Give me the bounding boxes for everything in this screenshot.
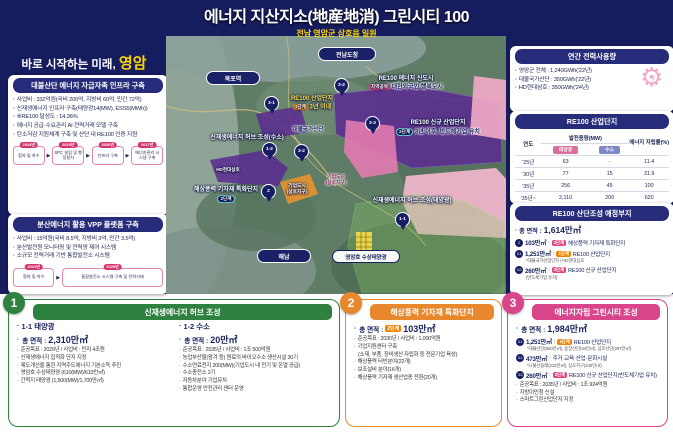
- stage-chip-2-wind: 2단계: [217, 195, 234, 203]
- map-label-lake-floating-solar: 영암호 수상태양광: [332, 250, 400, 263]
- wind-cluster-title: 해상풍력 기자재 특화단지: [370, 304, 494, 320]
- map-label-bizcity-small: 기업도시 (삼호지구): [278, 184, 316, 196]
- green-city-title: 에너지자립 그린시티 조성: [532, 304, 660, 320]
- timeline: 2024년 협약 및 착수 ▶ 2025년 통합발전소 시스템 구축 및 전력거…: [13, 268, 163, 287]
- left-panel-infra: 대불산단 에너지 자급자족 인프라 구축 사업비 : 332억원(국비 200억…: [8, 75, 168, 215]
- right-panel-re100-table: RE100 산업단지 연도 발전용량(MW) 에너지 자립률(%) 태양광 수소…: [510, 111, 673, 204]
- slogan-highlight: 영암: [119, 55, 147, 72]
- slogan: 바로 시작하는 미래, 영암: [4, 52, 164, 73]
- panel-number-badge: 2: [340, 292, 362, 314]
- site-item-note: (반도체기업 유치): [526, 275, 669, 281]
- slogan-prefix: 바로 시작하는 미래,: [21, 59, 118, 71]
- col-solar: 태양광: [553, 146, 578, 154]
- map-label-re100-industrial-line2: 1단계 3년 이내: [274, 104, 350, 112]
- map-pin-3-1: 3-1: [264, 96, 279, 111]
- map-pin-1-1: 1-1: [395, 212, 410, 227]
- timeline-step: 2025년 SPC 설립 및 행정절차: [52, 146, 84, 165]
- table-row: '30년771531.9: [515, 168, 669, 180]
- timeline-step: 2025년 통합발전소 시스템 구축 및 전력거래: [62, 268, 163, 287]
- bullet: 탄소저감 지원체계 구축 및 산단 내 RE100 인증 지원: [13, 131, 163, 140]
- map-label-hub-solar: 신재생에너지 허브 조성(태양광): [354, 198, 470, 206]
- map-place-mokpo-station: 목포역: [206, 71, 260, 85]
- arrow-icon: ▶: [56, 275, 60, 281]
- right-panel-planned-sites: RE100 산단조성 예정부지 · 총 면적 : 1,614만㎡ 2 103만㎡…: [510, 203, 673, 295]
- arrow-icon: ▶: [126, 153, 130, 159]
- stage-chip-2: 2단계: [396, 128, 413, 136]
- site-item-note: *대불국가산업단지 / HD현대삼호: [526, 258, 669, 264]
- bottom-panel-green-city: 3 에너지자립 그린시티 조성 총 면적 : 1,984만㎡ 3-1 1,251…: [507, 299, 668, 427]
- bullet: 대불국가산단 : 350GWh('22년): [515, 76, 639, 85]
- map-label-new-industrial-line2: 2단계 3년 이후, 반도체기업 유치: [380, 128, 496, 137]
- map-label-energy-newtown: RE100 에너지 신도시 지역공약 대한외국인 행복도시: [354, 76, 458, 92]
- map-label-energy-newtown-line2: 지역공약 대한외국인 행복도시: [354, 84, 458, 92]
- map-place-jeonnam-office: 전남도청: [318, 47, 376, 61]
- col-h2: 수소: [599, 146, 620, 154]
- arrow-icon: ▶: [47, 153, 51, 159]
- site-item: 2 103만㎡: 2단계 해상풍력 기자재 특화단지: [515, 238, 669, 247]
- re100-capacity-table: 연도 발전용량(MW) 에너지 자립률(%) 태양광 수소 '25년63-11.…: [515, 132, 669, 204]
- left-panel-vpp-title: 분산에너지 활용 VPP 플랫폼 구축: [13, 217, 163, 232]
- col-year: 연도: [515, 132, 541, 156]
- area-line: 총 면적 : 20만㎡: [179, 333, 333, 346]
- bullet: 분산발전원 모니터링 및 전력망 제어 시스템: [13, 244, 163, 253]
- site-item: 3-1 1,251만㎡: 1단계 RE100 산업단지: [515, 249, 669, 258]
- area-line: 총 면적 : 1,984만㎡: [516, 322, 661, 335]
- solar-column: 1-1 태양광 총 면적 : 2,310만㎡ 준공목표 : 2029년 / 사업…: [17, 321, 171, 423]
- right-panel-power-usage: 연간 전력사용량 영암군 전체 : 1,240GWh('22년) 대불국가산단 …: [510, 46, 673, 112]
- planned-sites-title: RE100 산단조성 예정부지: [515, 206, 669, 221]
- total-area: · 총 면적 : 1,614만㎡: [515, 224, 669, 236]
- area-line: 총 면적 : 2,310만㎡: [17, 333, 171, 346]
- map-label-bizcity: 기업도시 (삼호지구): [314, 175, 358, 187]
- panel-number-badge: 1: [3, 292, 25, 314]
- renewable-hub-title: 신재생에너지 허브 조성: [33, 304, 332, 320]
- bullet: ※RE100 달성도 : 14.36%: [13, 113, 163, 122]
- page-title: 에너지 지산지소(地産地消) 그린시티 100: [0, 3, 673, 27]
- arrow-icon: ▶: [86, 153, 90, 159]
- city-item-note: *대불산단(820만㎡), 용장산단(34만㎡), 삼호산단(297만㎡): [527, 346, 661, 352]
- satellite-map: 목포역 전남도청 해남 영암호 수상태양광 3-1 3-2 1-2 3-2 2 …: [166, 36, 506, 294]
- city-item: 3-2 473만㎡: 주거·교육·산업·문화시설: [516, 354, 661, 363]
- panel-number-badge: 3: [502, 292, 524, 314]
- bullet: 소규모 전력거래 기반 통합발전소 시스템: [13, 252, 163, 261]
- header: 에너지 지산지소(地産地消) 그린시티 100 전남 영암군 삼호읍 일원: [0, 3, 673, 39]
- re100-table-title: RE100 산업단지: [515, 114, 669, 129]
- table-row: '25년63-11.4: [515, 156, 669, 168]
- bullet: 에너지 공급·수요관리 AI 전력거래 모델 구축: [13, 122, 163, 131]
- col-capacity: 발전용량(MW): [541, 132, 629, 144]
- city-item: 3-3 260만㎡: 2단계 RE100 신규 산업단지(반도체기업 유치): [516, 371, 661, 380]
- bottom-panel-renewable-hub: 1 신재생에너지 허브 조성 1-1 태양광 총 면적 : 2,310만㎡ 준공…: [8, 299, 340, 427]
- timeline-step: 2024년 협약 및 착수: [13, 146, 45, 165]
- bullet: 신재생에너지 인프라 구축(태양광14(MW), ESS5(MWh)): [13, 105, 163, 114]
- table-row: '35년~2,110200620: [515, 192, 669, 204]
- timeline-step: 2027년 에너지관리 시스템 구축: [131, 146, 163, 165]
- map-label-hub-hydrogen: 신재생에너지 허브 조성(수소): [192, 135, 302, 143]
- col-rate: 에너지 자립률(%): [629, 132, 669, 156]
- map-pin-2: 2: [261, 184, 276, 199]
- area-line: 총 면적 : 2단계 103만㎡: [354, 322, 495, 335]
- timeline-step: 2024년 협약 및 착수: [13, 268, 54, 287]
- site-item: 3-2 260만㎡: 2단계 RE100 신규 산업단지: [515, 266, 669, 275]
- pledge-chip: 지역공약: [369, 84, 390, 90]
- left-panel-infra-title: 대불산단 에너지 자급자족 인프라 구축: [13, 78, 163, 93]
- table-row: '35년25645100: [515, 180, 669, 192]
- city-item: 3-1 1,251만㎡: 1단계 RE100 산업단지: [516, 337, 661, 346]
- map-label-daebul-complex: 대불국가산단: [280, 127, 336, 134]
- map-pin-1-2: 1-2: [262, 142, 277, 157]
- bullet: HD현대삼호 : 350GWh('24년): [515, 84, 639, 93]
- page-subtitle: 전남 영암군 삼호읍 일원: [0, 28, 673, 39]
- hydrogen-column: 1-2 수소 총 면적 : 20만㎡ 준공목표 : 2035년 / 사업비 : …: [179, 321, 333, 423]
- left-panel-vpp: 분산에너지 활용 VPP 플랫폼 구축 사업비 : 15억원(국비 8.5억, …: [8, 214, 168, 294]
- map-label-new-industrial: RE100 신규 산업단지 2단계 3년 이후, 반도체기업 유치: [380, 120, 496, 137]
- bullet: 사업비 : 15억원(국비 8.5억, 지방비 3억, 민간 3.5억): [13, 235, 163, 244]
- map-pin-3-2-b: 3-2: [294, 144, 309, 159]
- energy-gear-icon: ⚙⚡: [640, 66, 670, 96]
- timeline-step: 2026년 인프라 구축: [92, 146, 124, 165]
- timeline: 2024년 협약 및 착수 ▶ 2025년 SPC 설립 및 행정절차 ▶ 20…: [13, 146, 163, 165]
- map-label-hd-hyundai: HD현대삼호: [208, 167, 248, 173]
- bullet: 사업비 : 332억원(국비 200억, 지방비 60억, 민간 72억): [13, 96, 163, 105]
- city-item-note: *나불산들래(233만㎡), 삼호지구(240만㎡): [527, 363, 661, 369]
- map-place-haenam: 해남: [257, 249, 311, 263]
- map-pin-3-2-a: 3-2: [334, 78, 349, 93]
- bullet: 영암군 전체 : 1,240GWh('22년): [515, 67, 639, 76]
- map-pin-3-3: 3-3: [365, 116, 380, 131]
- infographic-root: 에너지 지산지소(地産地消) 그린시티 100 전남 영암군 삼호읍 일원 바로…: [0, 0, 673, 432]
- bottom-panel-wind-cluster: 2 해상풍력 기자재 특화단지 총 면적 : 2단계 103만㎡ 준공목표 : …: [345, 299, 502, 427]
- stage-chip-1: 1단계: [293, 104, 308, 110]
